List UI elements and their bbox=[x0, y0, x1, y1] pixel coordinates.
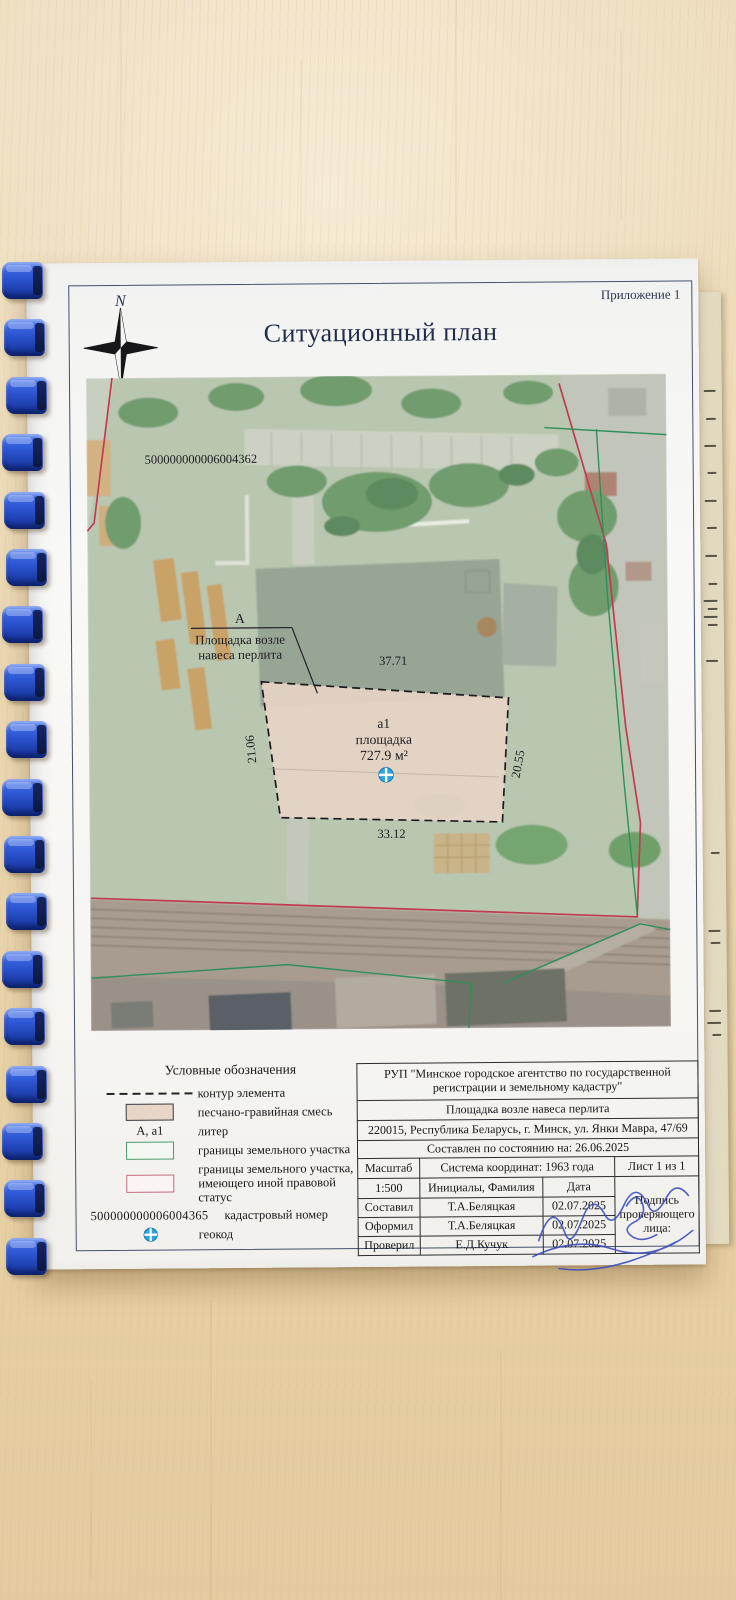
dim-top: 37.71 bbox=[379, 654, 407, 668]
binding-clip bbox=[4, 664, 45, 701]
binding-clip bbox=[2, 1123, 43, 1160]
backsheet-mark bbox=[708, 624, 718, 626]
binding-clip bbox=[2, 262, 43, 299]
situational-map: 500000000006004362 А Площадка возле наве… bbox=[86, 374, 671, 1032]
annex-label: Приложение 1 bbox=[601, 287, 681, 304]
backsheet-mark bbox=[704, 445, 716, 447]
binding-clip bbox=[4, 492, 45, 529]
legend-item-geocode: геокод bbox=[103, 1225, 361, 1243]
title-block: РУП "Минское городское агентство по госу… bbox=[356, 1060, 699, 1256]
wood-grain bbox=[620, 30, 622, 220]
binding-clip bbox=[4, 1180, 45, 1217]
legend-item-sand-gravel: песчано-гравийная смесь bbox=[102, 1102, 360, 1121]
wood-grain bbox=[90, 1380, 92, 1580]
document-frame: Приложение 1 Ситуационный план N S bbox=[68, 280, 700, 1251]
backsheet-mark bbox=[707, 1022, 721, 1024]
scale-value: 1:500 bbox=[358, 1178, 420, 1198]
backsheet-mark bbox=[711, 852, 720, 854]
parcel-area: 727.9 м² bbox=[360, 749, 408, 764]
object-name: Площадка возле навеса перлита bbox=[357, 1098, 698, 1121]
scale-label: Масштаб bbox=[358, 1158, 420, 1178]
wood-grain bbox=[210, 1300, 212, 1600]
backsheet-mark bbox=[705, 500, 717, 502]
dashed-line-swatch bbox=[107, 1092, 193, 1095]
legend-label: границы земельного участка bbox=[198, 1142, 350, 1157]
legend-label: геокод bbox=[199, 1227, 234, 1241]
title-block-table: РУП "Минское городское агентство по госу… bbox=[356, 1060, 700, 1256]
binding-clip bbox=[2, 434, 43, 471]
backsheet-mark bbox=[705, 555, 717, 557]
wood-grain bbox=[500, 1350, 502, 1600]
binding-clip bbox=[4, 319, 45, 356]
binding-clip bbox=[2, 606, 43, 643]
binding-clip bbox=[4, 836, 45, 873]
binding-clip bbox=[2, 951, 43, 988]
spiral-binding bbox=[2, 262, 66, 1274]
site-callout-line2: навеса перлита bbox=[198, 647, 282, 663]
site-callout-line1: Площадка возле bbox=[195, 632, 285, 648]
date-cell: 02.07.2025 bbox=[543, 1235, 615, 1255]
cadastral-number-sample: 500000000006004365 bbox=[90, 1208, 208, 1224]
backsheet-mark bbox=[708, 608, 718, 610]
photo-of-situational-plan: Приложение 1 Ситуационный план N S bbox=[0, 0, 736, 1600]
backsheet-mark bbox=[707, 472, 716, 474]
legend-item-other-status-border: границы земельного участка, имеющего ино… bbox=[102, 1161, 360, 1205]
wood-grain bbox=[455, 0, 457, 240]
sheet-info: Лист 1 из 1 bbox=[615, 1156, 699, 1177]
legend-item-litera: А, а1 литер bbox=[102, 1122, 360, 1139]
legend-label: контур элемента bbox=[198, 1086, 286, 1101]
organization-name: РУП "Минское городское агентство по госу… bbox=[357, 1061, 698, 1101]
wood-grain bbox=[300, 60, 302, 260]
role-cell: Оформил bbox=[358, 1217, 420, 1236]
geocode-marker-icon bbox=[379, 768, 394, 783]
legend-item-contour: контур элемента bbox=[102, 1085, 360, 1101]
binding-clip bbox=[4, 1008, 45, 1045]
map-cadastral-number: 500000000006004362 bbox=[145, 452, 258, 467]
backsheet-mark bbox=[704, 390, 716, 392]
binding-clip bbox=[6, 893, 47, 930]
legend-item-cadastral-number: 500000000006004365 кадастровый номер bbox=[90, 1207, 360, 1224]
signature-note: Подпись проверяющего лица: bbox=[615, 1176, 700, 1254]
sand-gravel-swatch bbox=[126, 1104, 174, 1121]
initials-header: Инициалы, Фамилия bbox=[420, 1177, 543, 1198]
coordinate-system: Система координат: 1963 года bbox=[420, 1157, 615, 1179]
parcel-name: площадка bbox=[356, 732, 412, 747]
backsheet-mark bbox=[706, 418, 716, 420]
site-callout-letter: А bbox=[235, 611, 245, 626]
backsheet-mark bbox=[711, 942, 721, 944]
binding-clip bbox=[6, 377, 47, 414]
date-cell: 02.07.2025 bbox=[543, 1216, 615, 1236]
green-border-swatch bbox=[126, 1142, 174, 1160]
date-cell: 02.07.2025 bbox=[543, 1197, 615, 1217]
binding-clip bbox=[6, 1066, 47, 1103]
dim-left: 21.06 bbox=[243, 735, 260, 764]
dim-bottom: 33.12 bbox=[377, 827, 405, 841]
compass-north-label: N bbox=[114, 293, 127, 310]
name-cell: Е.Д.Кучук bbox=[420, 1235, 543, 1255]
geocode-legend-icon bbox=[143, 1227, 159, 1243]
legend-label: кадастровый номер bbox=[224, 1207, 328, 1223]
name-cell: Т.А.Беляцкая bbox=[420, 1216, 543, 1236]
backsheet-mark bbox=[706, 660, 718, 662]
backsheet-mark bbox=[704, 616, 718, 618]
parcel-litera: а1 bbox=[377, 716, 390, 731]
backsheet-mark bbox=[709, 1010, 721, 1012]
legend: Условные обозначения контур элемента пес… bbox=[101, 1061, 360, 1246]
binding-clip bbox=[2, 779, 43, 816]
role-cell: Проверил bbox=[358, 1236, 420, 1255]
document-page: Приложение 1 Ситуационный план N S bbox=[26, 258, 706, 1269]
backsheet-mark bbox=[712, 1034, 721, 1036]
backsheet-mark bbox=[708, 583, 717, 585]
binding-clip bbox=[6, 549, 47, 586]
legend-heading: Условные обозначения bbox=[101, 1061, 359, 1079]
date-header: Дата bbox=[543, 1177, 615, 1198]
legend-label: литер bbox=[198, 1124, 228, 1138]
role-cell: Составил bbox=[358, 1198, 420, 1217]
red-border-swatch bbox=[126, 1175, 174, 1193]
backsheet-mark bbox=[704, 600, 718, 602]
name-cell: Т.А.Беляцкая bbox=[420, 1197, 543, 1217]
binding-clip bbox=[6, 1238, 47, 1275]
legend-label: песчано-гравийная смесь bbox=[198, 1104, 333, 1119]
backsheet-mark bbox=[707, 527, 717, 529]
backsheet-mark bbox=[708, 930, 720, 932]
litera-swatch-text: А, а1 bbox=[136, 1124, 163, 1139]
binding-clip bbox=[6, 721, 47, 758]
wood-grain bbox=[120, 0, 122, 260]
legend-item-parcel-border: границы земельного участка bbox=[102, 1140, 360, 1160]
object-address: 220015, Республика Беларусь, г. Минск, у… bbox=[357, 1118, 698, 1141]
legend-label: границы земельного участка, имеющего ино… bbox=[198, 1161, 360, 1204]
